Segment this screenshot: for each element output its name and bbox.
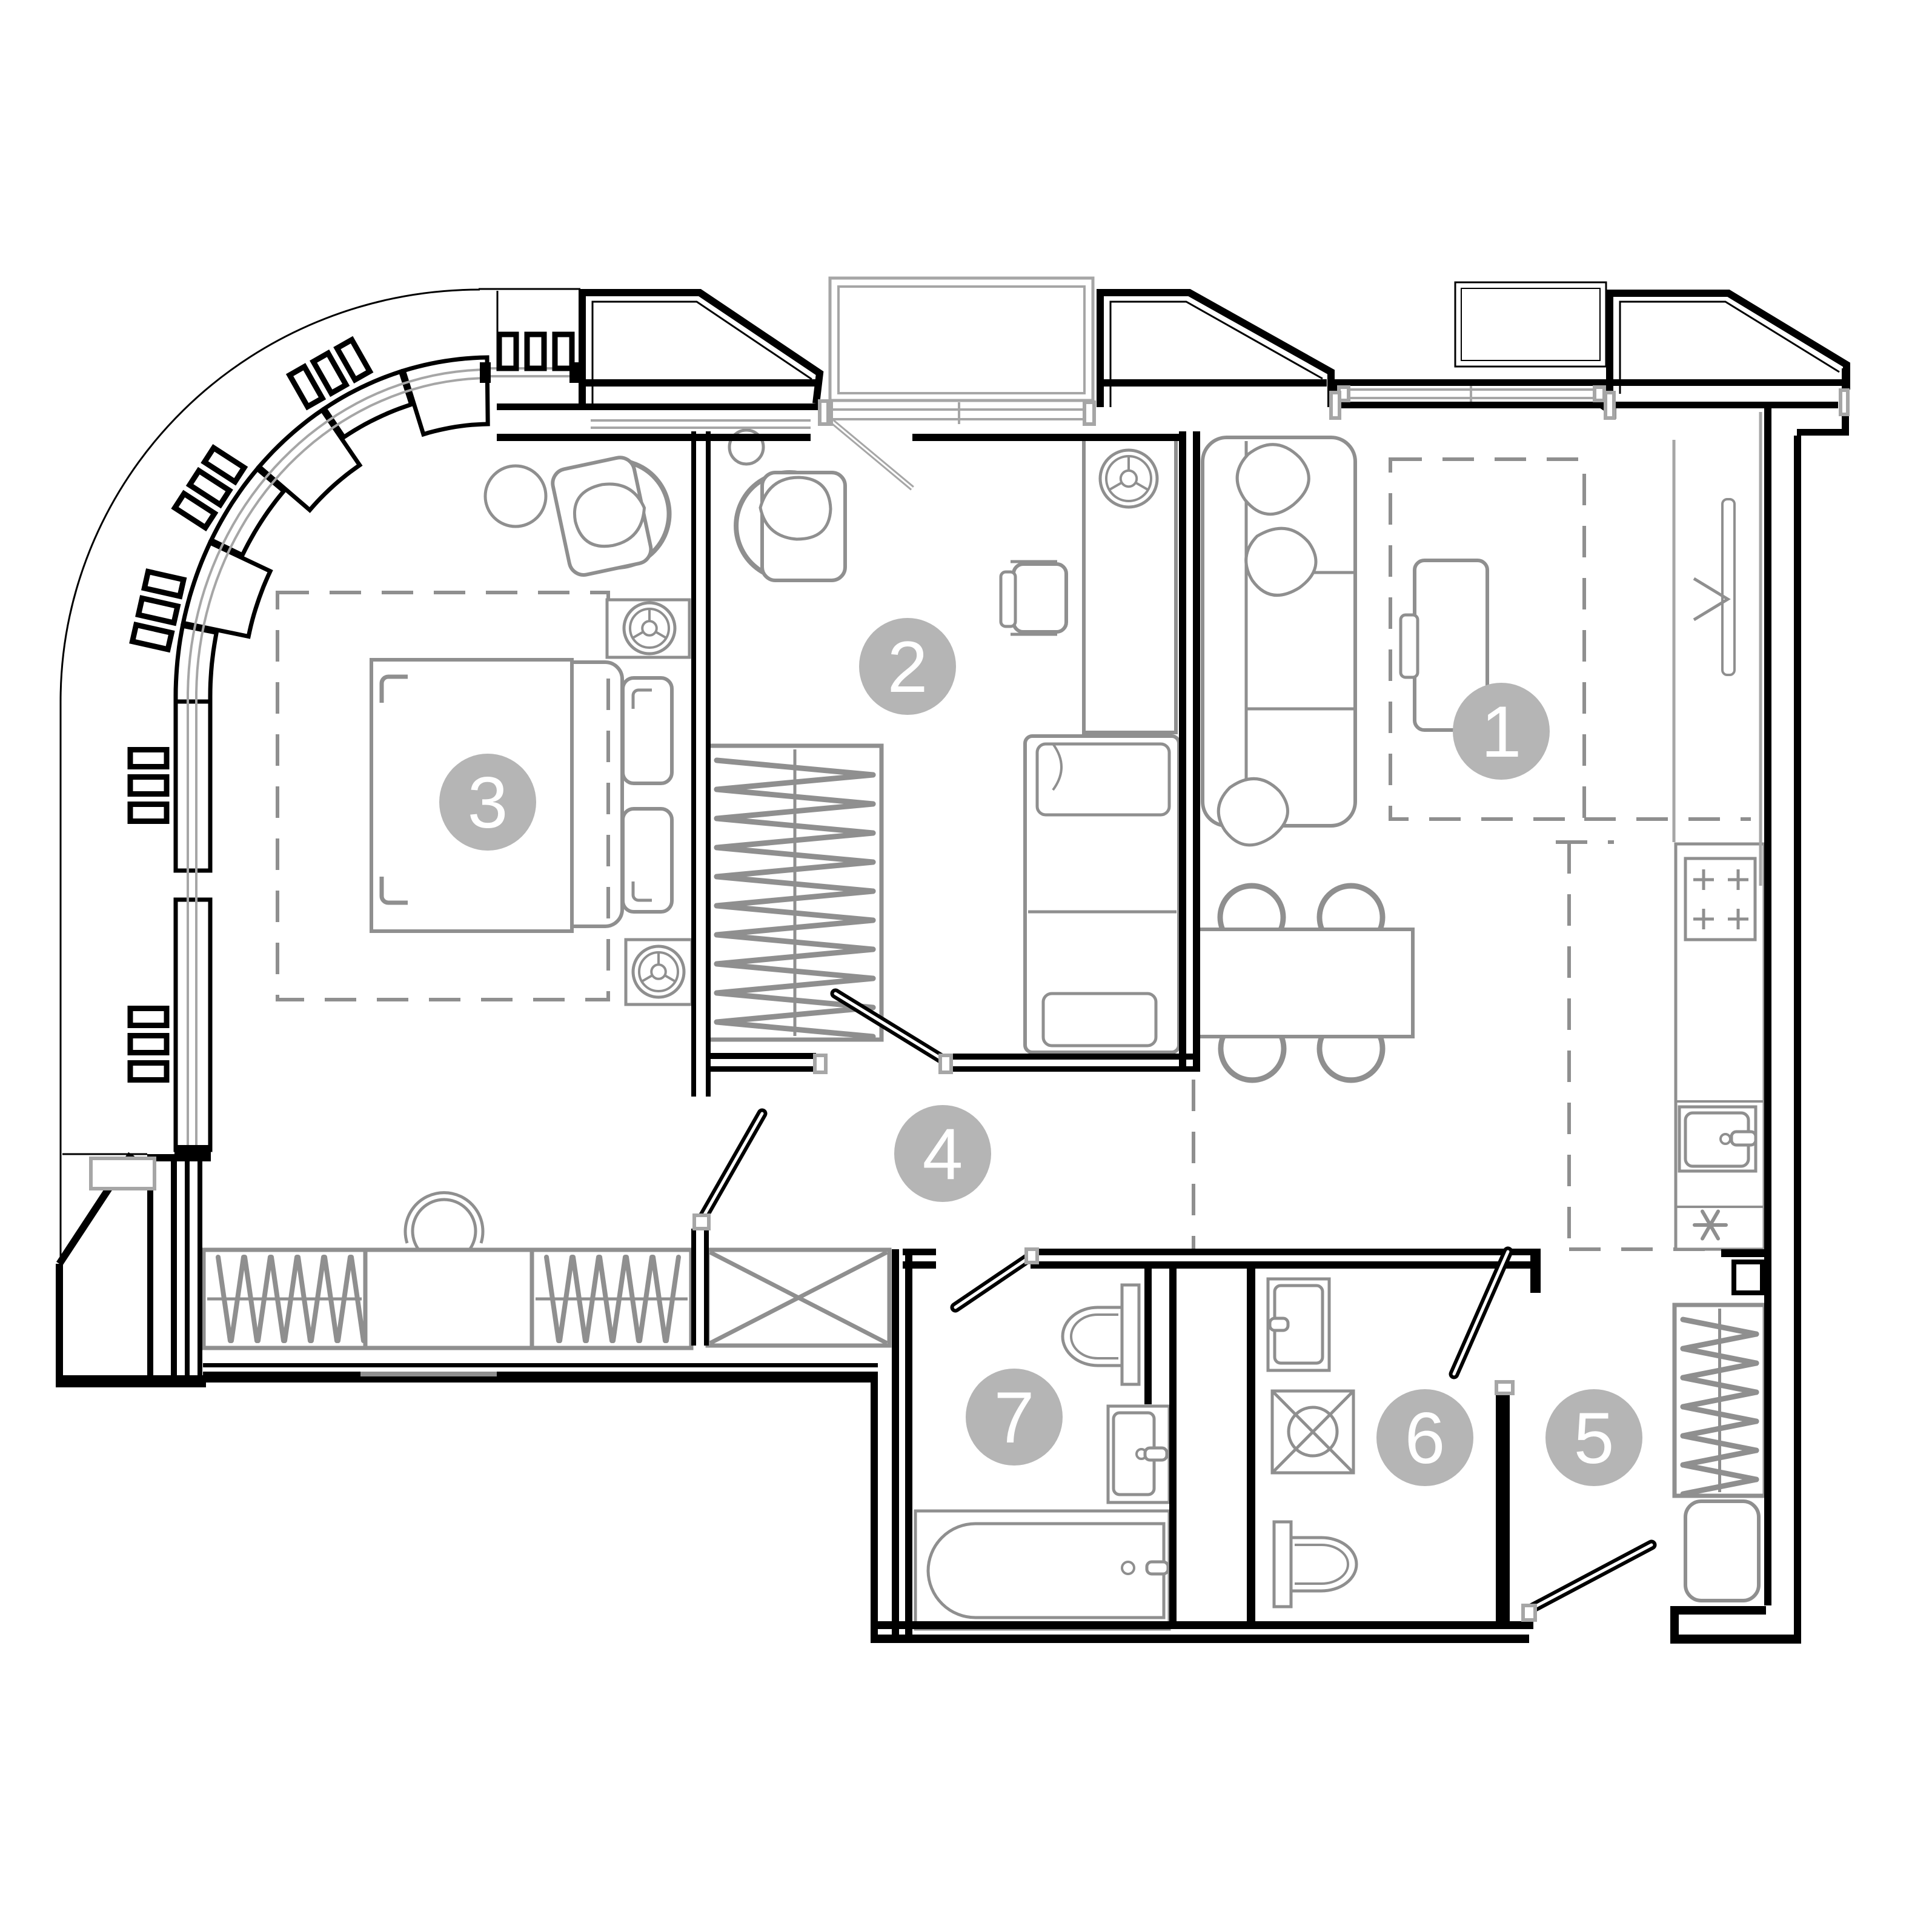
svg-text:5: 5 — [1574, 1398, 1615, 1479]
svg-text:1: 1 — [1481, 691, 1522, 772]
svg-text:2: 2 — [888, 626, 928, 708]
svg-text:3: 3 — [468, 762, 508, 843]
svg-text:6: 6 — [1405, 1398, 1446, 1479]
svg-text:4: 4 — [923, 1114, 963, 1195]
svg-text:7: 7 — [994, 1377, 1035, 1458]
